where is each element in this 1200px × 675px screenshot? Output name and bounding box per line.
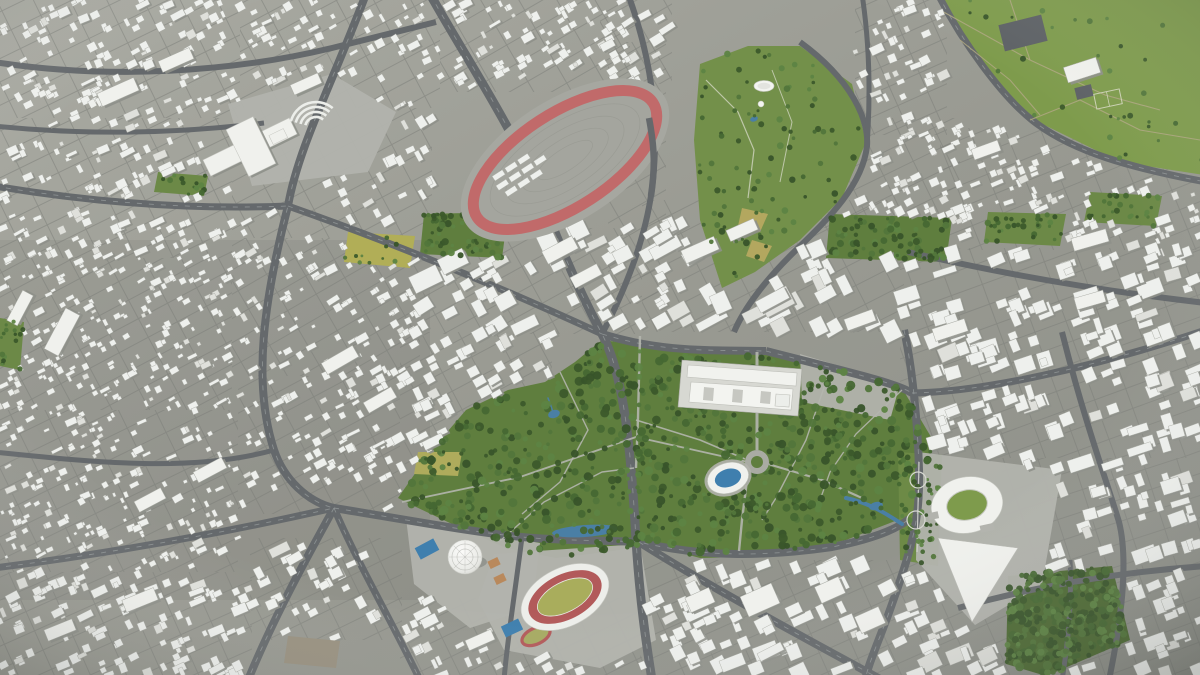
- vignette: [0, 0, 1200, 675]
- map-canvas: [0, 0, 1200, 675]
- city-3d-map-render: [0, 0, 1200, 675]
